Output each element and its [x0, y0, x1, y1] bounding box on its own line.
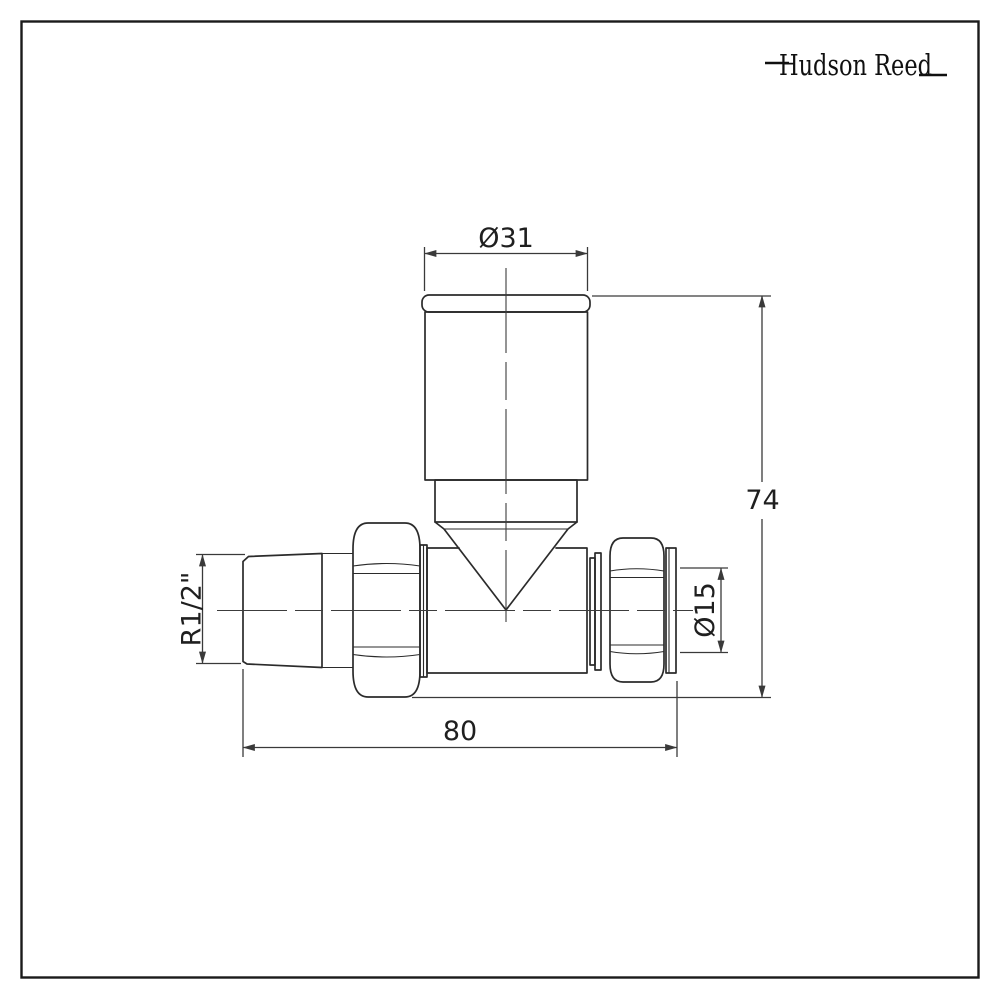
dimension-label-overall-height: 74 — [745, 485, 779, 516]
dimension-label-overall-length: 80 — [443, 716, 477, 747]
technical-drawing: Hudson Reed — [0, 0, 1000, 1000]
compression-nut-facet-line — [610, 652, 664, 654]
dimension-label-pipe-diameter: Ø15 — [690, 582, 721, 638]
drawing-page: Hudson Reed — [0, 0, 1000, 1000]
dimensions: Ø31 74 R1/2" Ø15 — [177, 223, 780, 757]
compression-flange — [595, 553, 601, 670]
center-lines — [217, 268, 693, 622]
dimension-label-head-diameter: Ø31 — [478, 223, 534, 254]
valve-outline — [243, 295, 676, 697]
union-nut-facet-line — [353, 655, 420, 658]
dimension-label-inlet-thread: R1/2" — [177, 572, 208, 647]
logo-text: Hudson Reed — [779, 48, 932, 82]
dimension-overall-length: 80 — [243, 669, 677, 757]
brand-logo: Hudson Reed — [765, 48, 947, 82]
union-nut-facet-line — [353, 564, 420, 567]
compression-nut-facet-line — [610, 569, 664, 571]
dimension-inlet-thread: R1/2" — [177, 555, 246, 664]
drawing-border — [22, 22, 979, 978]
